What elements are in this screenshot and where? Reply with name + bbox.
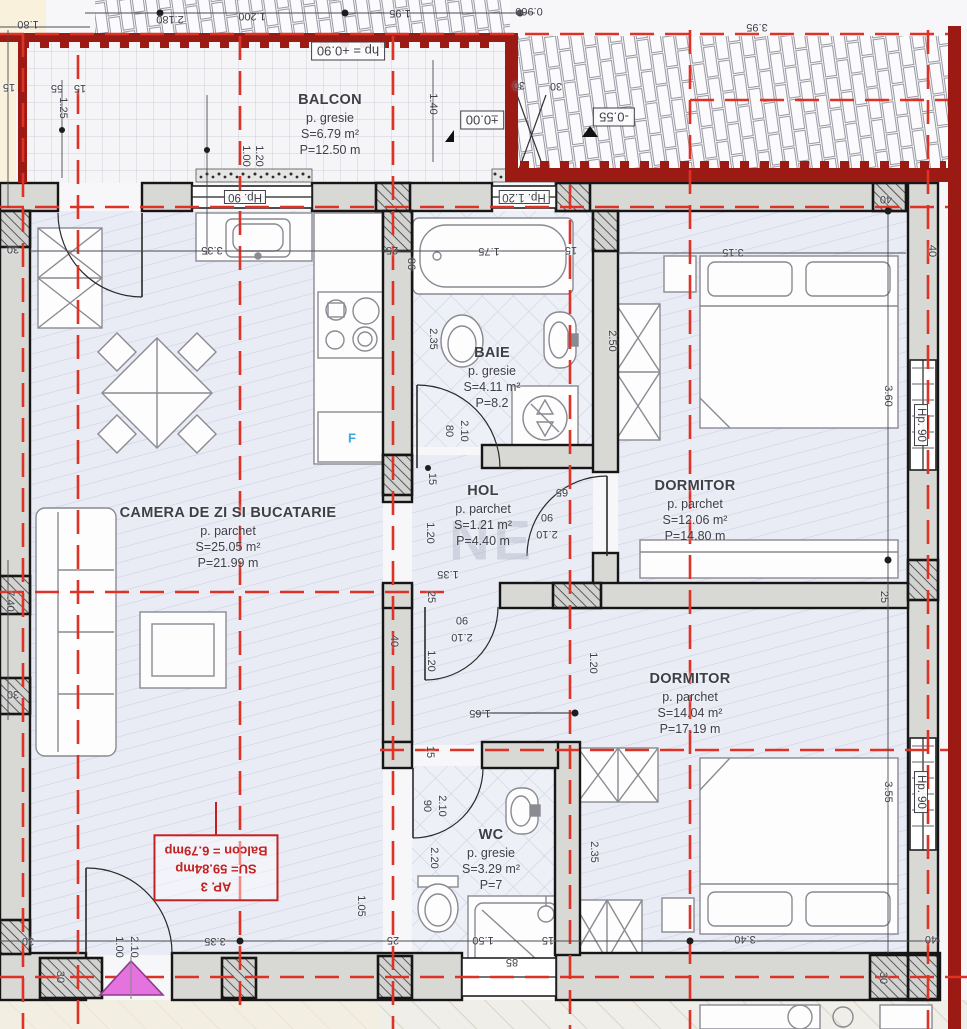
dimension-label: 40 [925, 933, 937, 945]
dimension-label: Hp. 1.20 [498, 190, 549, 204]
dimension-label: 15 [426, 473, 438, 485]
dimension-label: 2.35 [427, 328, 439, 349]
level-label: ±0.00 [460, 111, 504, 130]
floor-plan: AP. 3 SU= 59.84mp Balcon = 6.79mp NE BAL… [0, 0, 967, 1029]
dimension-label: 1.20 [425, 650, 437, 671]
dimension-label: 65 [556, 486, 568, 498]
dimension-label: 30 [7, 688, 19, 700]
dimension-label: 2.180 [156, 13, 184, 25]
room-label-baie: BAIEp. gresieS=4.11 m²P=8.2 [463, 344, 520, 412]
dimension-label: 40 [926, 245, 938, 257]
dimension-label: 2.10 [436, 795, 448, 816]
dimension-label: 15 [74, 82, 86, 94]
dimension-label: 30 [877, 972, 889, 984]
level-label: -0.55 [593, 108, 635, 127]
dimension-label: 0.960 [515, 5, 543, 17]
dimension-label: 30 [7, 243, 19, 255]
dimension-label: 1.35 [437, 568, 458, 580]
dimension-label: 2.20 [428, 847, 440, 868]
dimension-label: 30 [513, 79, 525, 91]
dimension-label: 1.80 [17, 18, 38, 30]
dimension-label: 2.35 [588, 841, 600, 862]
dimension-label: 1.75 [478, 245, 499, 257]
dimension-label: 2.50 [606, 330, 618, 351]
dimension-label: 90 [541, 511, 553, 523]
dimension-label: 3.35 [201, 244, 222, 256]
dimension-label: Hp. 90 [914, 404, 928, 446]
dimension-label: 40 [388, 635, 400, 647]
dimension-label: 15 [3, 81, 15, 93]
dimension-label: 3.60 [882, 385, 894, 406]
dimension-label: Hp. 90 [914, 771, 928, 813]
dimension-label: 3.55 [882, 781, 894, 802]
dimension-label: 1.200 [238, 10, 266, 22]
dimension-label: 25 [425, 591, 437, 603]
dimension-label: 15 [565, 244, 577, 256]
dimension-label: 40 [880, 193, 892, 205]
apartment-balcon: Balcon = 6.79mp [165, 841, 268, 859]
dimension-label: 1.20 [587, 652, 599, 673]
dimension-label: 1.05 [355, 895, 367, 916]
dimension-label: 15 [424, 746, 436, 758]
dimension-label: 15 [542, 934, 554, 946]
dimension-label: 3.40 [734, 933, 755, 945]
room-label-camera-de-zi: CAMERA DE ZI SI BUCATARIEp. parchetS=25.… [120, 504, 337, 572]
dimension-label: 1.20 [253, 145, 265, 166]
dimension-label: 86 [405, 258, 417, 270]
dimension-label: 90 [456, 614, 468, 626]
dimension-label: 1.40 [427, 93, 439, 114]
dimension-label: 25 [878, 591, 890, 603]
dimension-label: 55 [51, 82, 63, 94]
dimension-label: 80 [443, 425, 455, 437]
apartment-su: SU= 59.84mp [165, 859, 268, 877]
dimension-label: 7.40 [4, 590, 16, 611]
dimension-label: 85 [506, 956, 518, 968]
apartment-number: AP. 3 [165, 877, 268, 895]
dimension-label: 1.20 [424, 522, 436, 543]
dimension-label: 90 [421, 800, 433, 812]
dimension-label: 3.15 [722, 246, 743, 258]
room-label-wc: WCp. gresieS=3.29 m²P=7 [462, 826, 520, 894]
room-label-dormitor-2: DORMITORp. parchetS=14.04 m²P=17.19 m [649, 670, 730, 738]
dimension-label: 2.10 [128, 936, 140, 957]
dimension-label: 3.35 [204, 935, 225, 947]
room-label-dormitor-1: DORMITORp. parchetS=12.06 m²P=14.80 m [654, 477, 735, 545]
level-label: hp = +0.90 [311, 42, 385, 61]
apartment-tag: AP. 3 SU= 59.84mp Balcon = 6.79mp [154, 835, 279, 902]
dimension-label: Hp. 90 [224, 190, 266, 204]
dimension-label: 1.25 [57, 97, 69, 118]
dimension-label: 1.00 [240, 145, 252, 166]
dimension-label: 1.50 [472, 934, 493, 946]
dimension-label: 2.10 [451, 631, 472, 643]
dimension-label: 25 [387, 934, 399, 946]
dimension-label: 1.00 [113, 936, 125, 957]
dimension-label: 30 [54, 971, 66, 983]
dimension-label: 3.95 [746, 21, 767, 33]
dimension-label: 30 [550, 80, 562, 92]
dimension-label: 2.10 [536, 528, 557, 540]
dimension-label: 2.10 [458, 420, 470, 441]
labels-layer: AP. 3 SU= 59.84mp Balcon = 6.79mp NE BAL… [0, 0, 967, 1029]
dimension-label: 1.95 [389, 7, 410, 19]
dimension-label: 30 [22, 935, 34, 947]
dimension-label: 25 [386, 244, 398, 256]
room-label-hol: HOLp. parchetS=1.21 m²P=4.40 m [454, 482, 512, 550]
room-label-balcon: BALCONp. gresieS=6.79 m²P=12.50 m [298, 91, 362, 159]
dimension-label: F [348, 431, 356, 446]
dimension-label: 1.65 [469, 707, 490, 719]
